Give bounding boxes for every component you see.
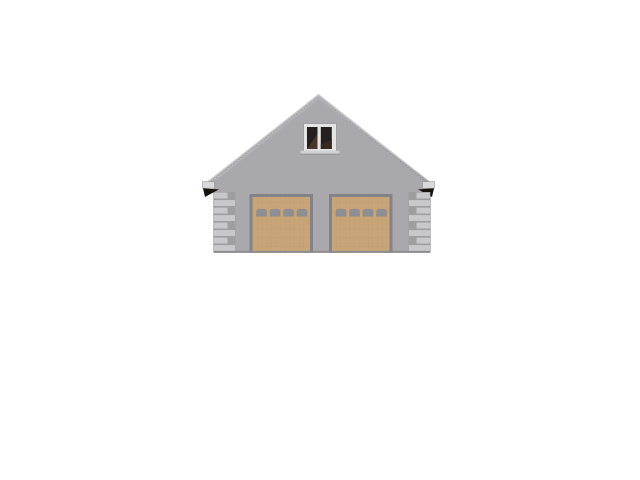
left-quoin-block <box>214 215 235 221</box>
garage-door-right <box>329 194 393 253</box>
left-corner-quoins <box>214 192 235 253</box>
attic-window-sill <box>301 151 340 154</box>
right-quoin-block <box>417 238 431 244</box>
left-quoin-block <box>214 223 228 229</box>
door-lite <box>270 209 280 216</box>
left-quoin-block <box>214 208 228 214</box>
garage-door-right-texture <box>332 197 390 253</box>
right-corner-quoins <box>409 192 430 253</box>
left-quoin-block <box>214 230 235 236</box>
left-gutter-cap <box>203 182 215 189</box>
right-quoin-block <box>409 230 430 236</box>
elevation-render <box>0 0 640 480</box>
left-quoin-block <box>214 238 228 244</box>
left-quoin-block <box>214 193 228 199</box>
door-lite <box>350 209 360 216</box>
door-lite <box>297 209 307 216</box>
base-shadow <box>214 251 431 253</box>
attic-window-sill-shadow <box>301 154 340 155</box>
left-quoin-block <box>214 200 235 206</box>
right-quoin-block <box>409 215 430 221</box>
door-lite <box>257 209 267 216</box>
door-lite <box>377 209 387 216</box>
right-quoin-block <box>417 193 431 199</box>
attic-window <box>301 124 340 155</box>
right-quoin-block <box>409 245 430 251</box>
door-lite <box>284 209 294 216</box>
right-gutter-cap <box>423 182 435 189</box>
door-lite <box>336 209 346 216</box>
garage-door-left-texture <box>253 197 311 253</box>
left-quoin-block <box>214 245 235 251</box>
right-quoin-block <box>409 200 430 206</box>
right-quoin-block <box>417 208 431 214</box>
door-lite <box>363 209 373 216</box>
right-quoin-block <box>417 223 431 229</box>
garage-door-left <box>250 194 314 253</box>
